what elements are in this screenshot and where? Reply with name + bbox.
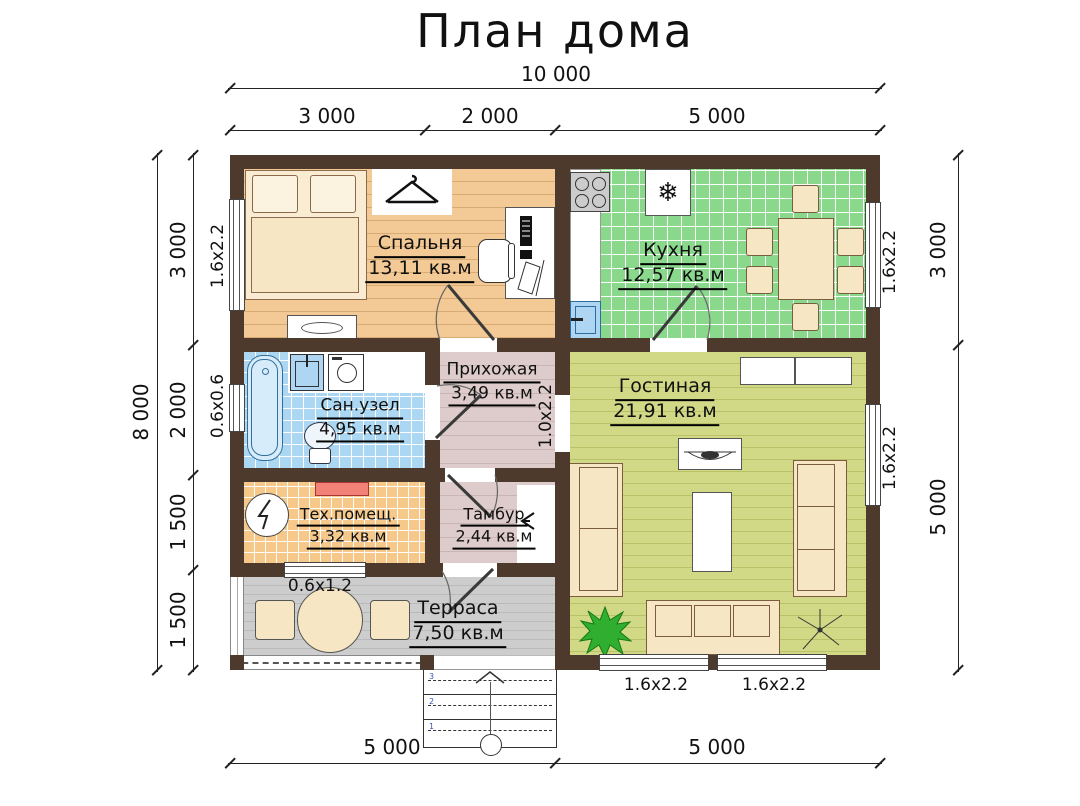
room-area: 12,57 кв.м: [618, 265, 727, 290]
hallway-label: Прихожая 3,49 кв.м: [443, 359, 540, 406]
living-label: Гостиная 21,91 кв.м: [610, 376, 719, 426]
bedroom-door-leaf: [448, 285, 494, 340]
door-arc: [436, 285, 448, 340]
step-number: 1: [429, 722, 434, 731]
step-number: 2: [429, 697, 434, 706]
dim-left-seg-3: 1 500: [166, 493, 190, 550]
step-number: 3: [429, 672, 434, 681]
dim-line-top-total: [228, 88, 882, 89]
bedroom-label: Спальня 13,11 кв.м: [365, 233, 474, 283]
room-area: 7,50 кв.м: [409, 623, 506, 648]
room-name: Гостиная: [616, 376, 715, 401]
dim-line-left-total: [157, 153, 158, 672]
dim-top-seg-1: 3 000: [298, 104, 355, 128]
kitchen-label: Кухня 12,57 кв.м: [618, 240, 727, 290]
room-area: 3,32 кв.м: [307, 528, 390, 549]
walk-line-start: [480, 734, 502, 756]
hallway-door-label: 1.0х2.2: [536, 384, 556, 448]
dim-line-right-segments: [958, 153, 959, 672]
dim-left-seg-1: 3 000: [166, 221, 190, 278]
room-area: 2,44 кв.м: [453, 528, 536, 549]
walk-line: [490, 682, 491, 736]
room-name: Кухня: [640, 240, 706, 265]
utility-label: Тех.помещ. 3,32 кв.м: [297, 505, 400, 550]
bedroom-window-label: 1.6х2.2: [208, 224, 228, 288]
living-window-bottom-left-label: 1.6х2.2: [624, 675, 688, 695]
kitchen-window-label: 1.6х2.2: [880, 230, 900, 294]
room-area: 21,91 кв.м: [610, 401, 719, 426]
dim-bottom-seg-2: 5 000: [688, 735, 745, 759]
dim-top-total: 10 000: [521, 62, 591, 86]
dim-top-seg-3: 5 000: [688, 104, 745, 128]
dim-bottom-seg-1: 5 000: [363, 735, 420, 759]
room-area: 3,49 кв.м: [448, 384, 536, 407]
living-window-right-label: 1.6х2.2: [880, 426, 900, 490]
floor-plan-page: План дома 10 000 3 000 2 000 5 000 8 000…: [0, 0, 1080, 806]
room-name: Сан.узел: [317, 396, 402, 419]
living-window-bottom-right-label: 1.6х2.2: [742, 675, 806, 695]
vestibule-label: Тамбур 2,44 кв.м: [453, 505, 536, 550]
terrace-label: Терраса 7,50 кв.м: [409, 598, 506, 648]
dim-left-total: 8 000: [129, 383, 153, 440]
dim-right-seg-1: 3 000: [926, 221, 950, 278]
dim-line-left-segments: [193, 153, 194, 672]
room-name: Терраса: [414, 598, 501, 623]
room-name: Спальня: [375, 233, 466, 258]
dim-right-seg-2: 5 000: [926, 478, 950, 535]
dim-left-seg-2: 2 000: [166, 381, 190, 438]
room-name: Тех.помещ.: [297, 506, 400, 527]
room-area: 13,11 кв.м: [365, 258, 474, 283]
room-area: 4,95 кв.м: [316, 420, 404, 443]
utility-window-label: 0.6х1.2: [288, 576, 352, 596]
kitchen-door-leaf: [653, 286, 697, 340]
dim-left-seg-4: 1 500: [166, 591, 190, 648]
bathroom-label: Сан.узел 4,95 кв.м: [316, 395, 404, 442]
entry-stairs: 3 2 1: [423, 670, 557, 748]
entry-arrow-icon: [470, 670, 510, 684]
bathroom-window-label: 0.6х0.6: [208, 374, 228, 438]
room-name: Прихожая: [443, 360, 540, 383]
dim-top-seg-2: 2 000: [461, 104, 518, 128]
page-title: План дома: [416, 4, 694, 58]
door-arc: [697, 286, 710, 340]
room-name: Тамбур: [460, 506, 527, 527]
